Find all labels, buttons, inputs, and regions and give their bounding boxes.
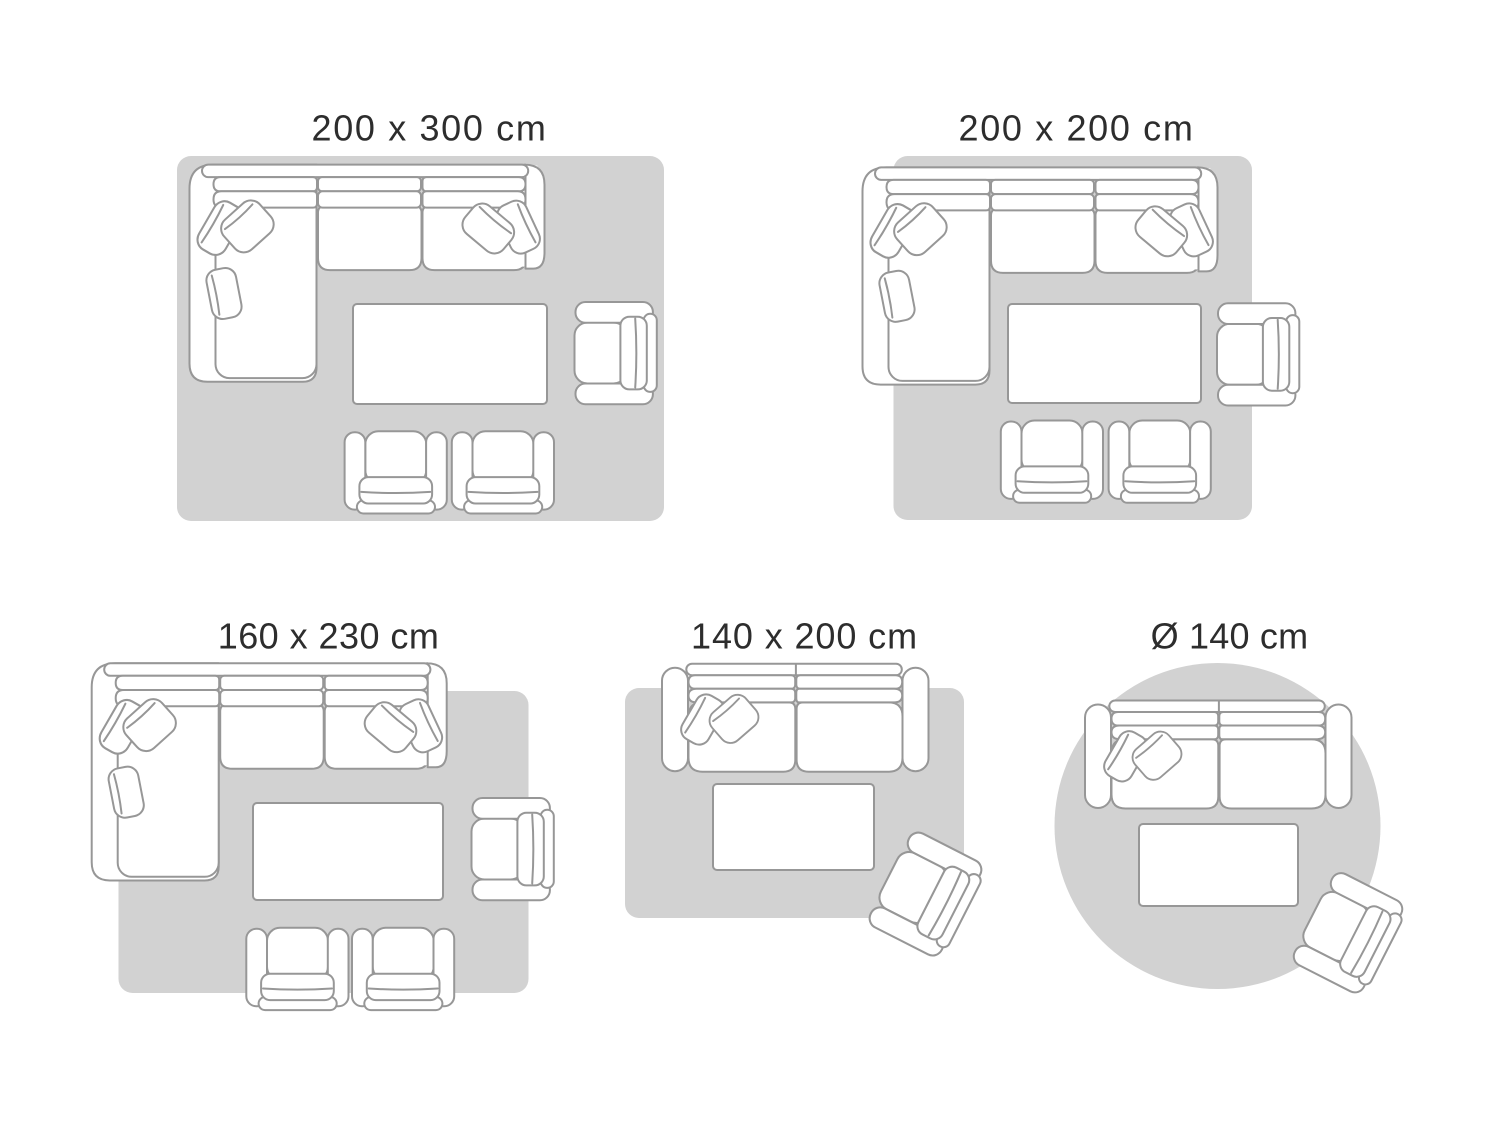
svg-text:200 x 200 cm: 200 x 200 cm xyxy=(959,108,1195,149)
svg-text:Ø 140 cm: Ø 140 cm xyxy=(1151,616,1309,657)
svg-text:140 x 200 cm: 140 x 200 cm xyxy=(691,616,918,657)
svg-text:200 x 300 cm: 200 x 300 cm xyxy=(312,108,548,149)
svg-text:160 x 230 cm: 160 x 230 cm xyxy=(218,616,440,657)
